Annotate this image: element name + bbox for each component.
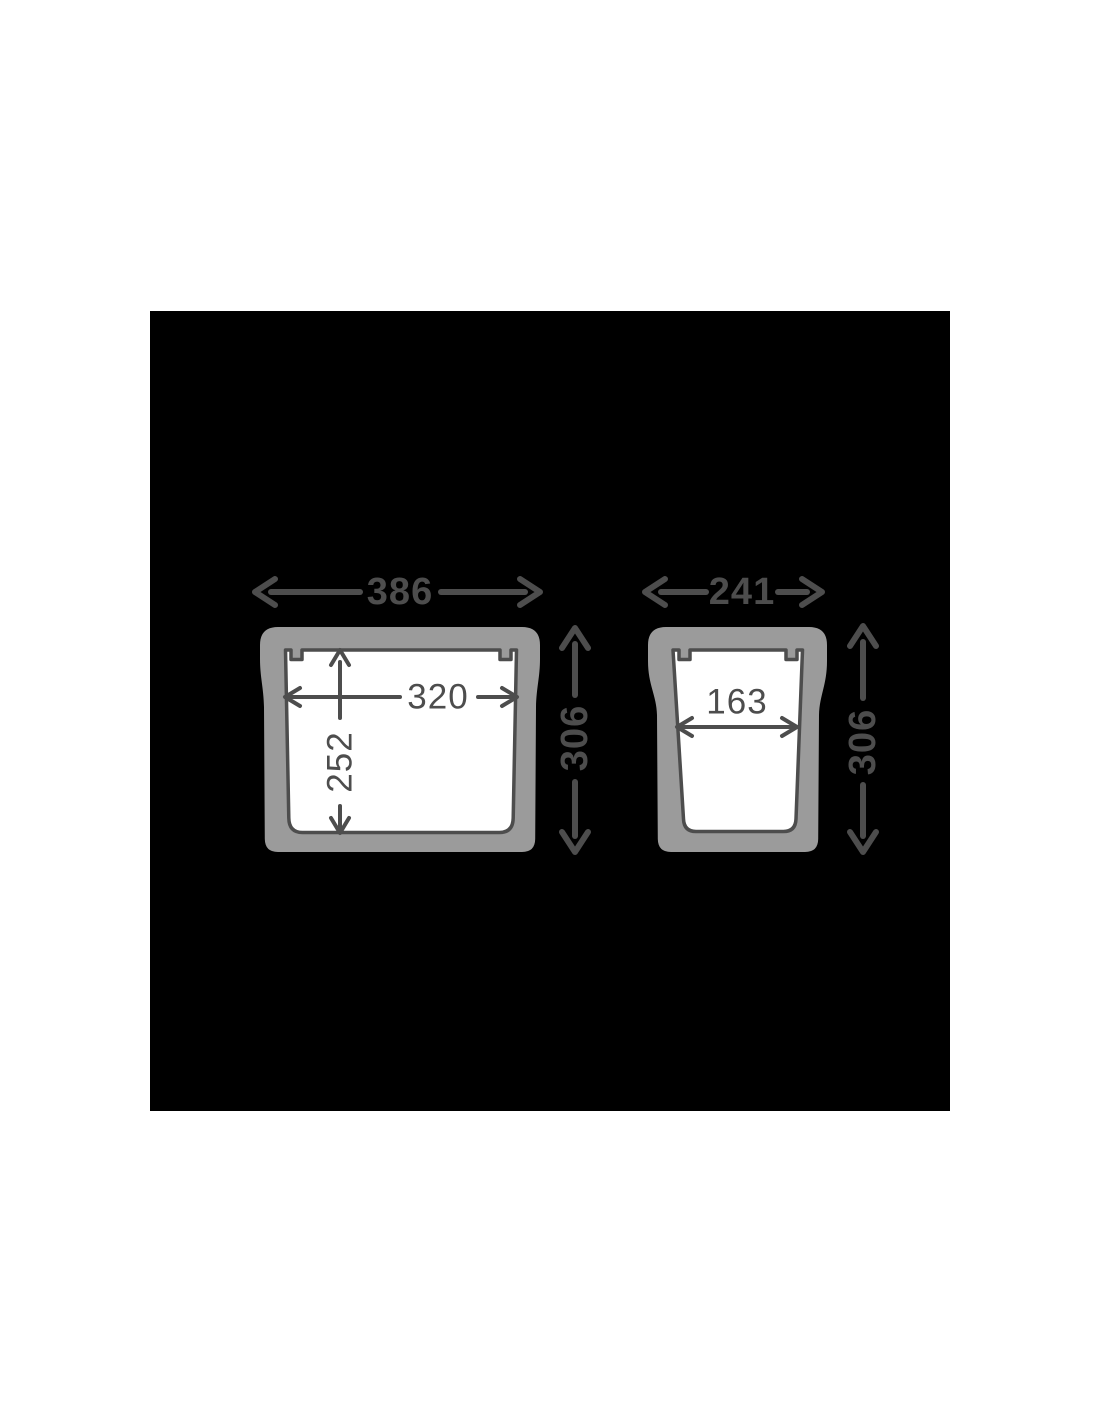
large-box xyxy=(260,627,540,852)
large-inner-width-label: 320 xyxy=(407,680,468,715)
small-outer-height-label: 306 xyxy=(844,709,882,775)
small-box xyxy=(648,627,827,852)
small-outer-width-label: 241 xyxy=(709,573,775,611)
diagram-panel: 386 241 306 306 320 252 163 xyxy=(150,311,950,1111)
large-outer-height-label: 306 xyxy=(556,705,594,771)
large-inner-depth-label: 252 xyxy=(323,731,358,792)
small-inner-width-label: 163 xyxy=(706,685,767,720)
cooler-cross-section-diagram xyxy=(150,311,950,1111)
large-outer-width-label: 386 xyxy=(367,573,433,611)
small-box-cavity xyxy=(673,650,803,832)
